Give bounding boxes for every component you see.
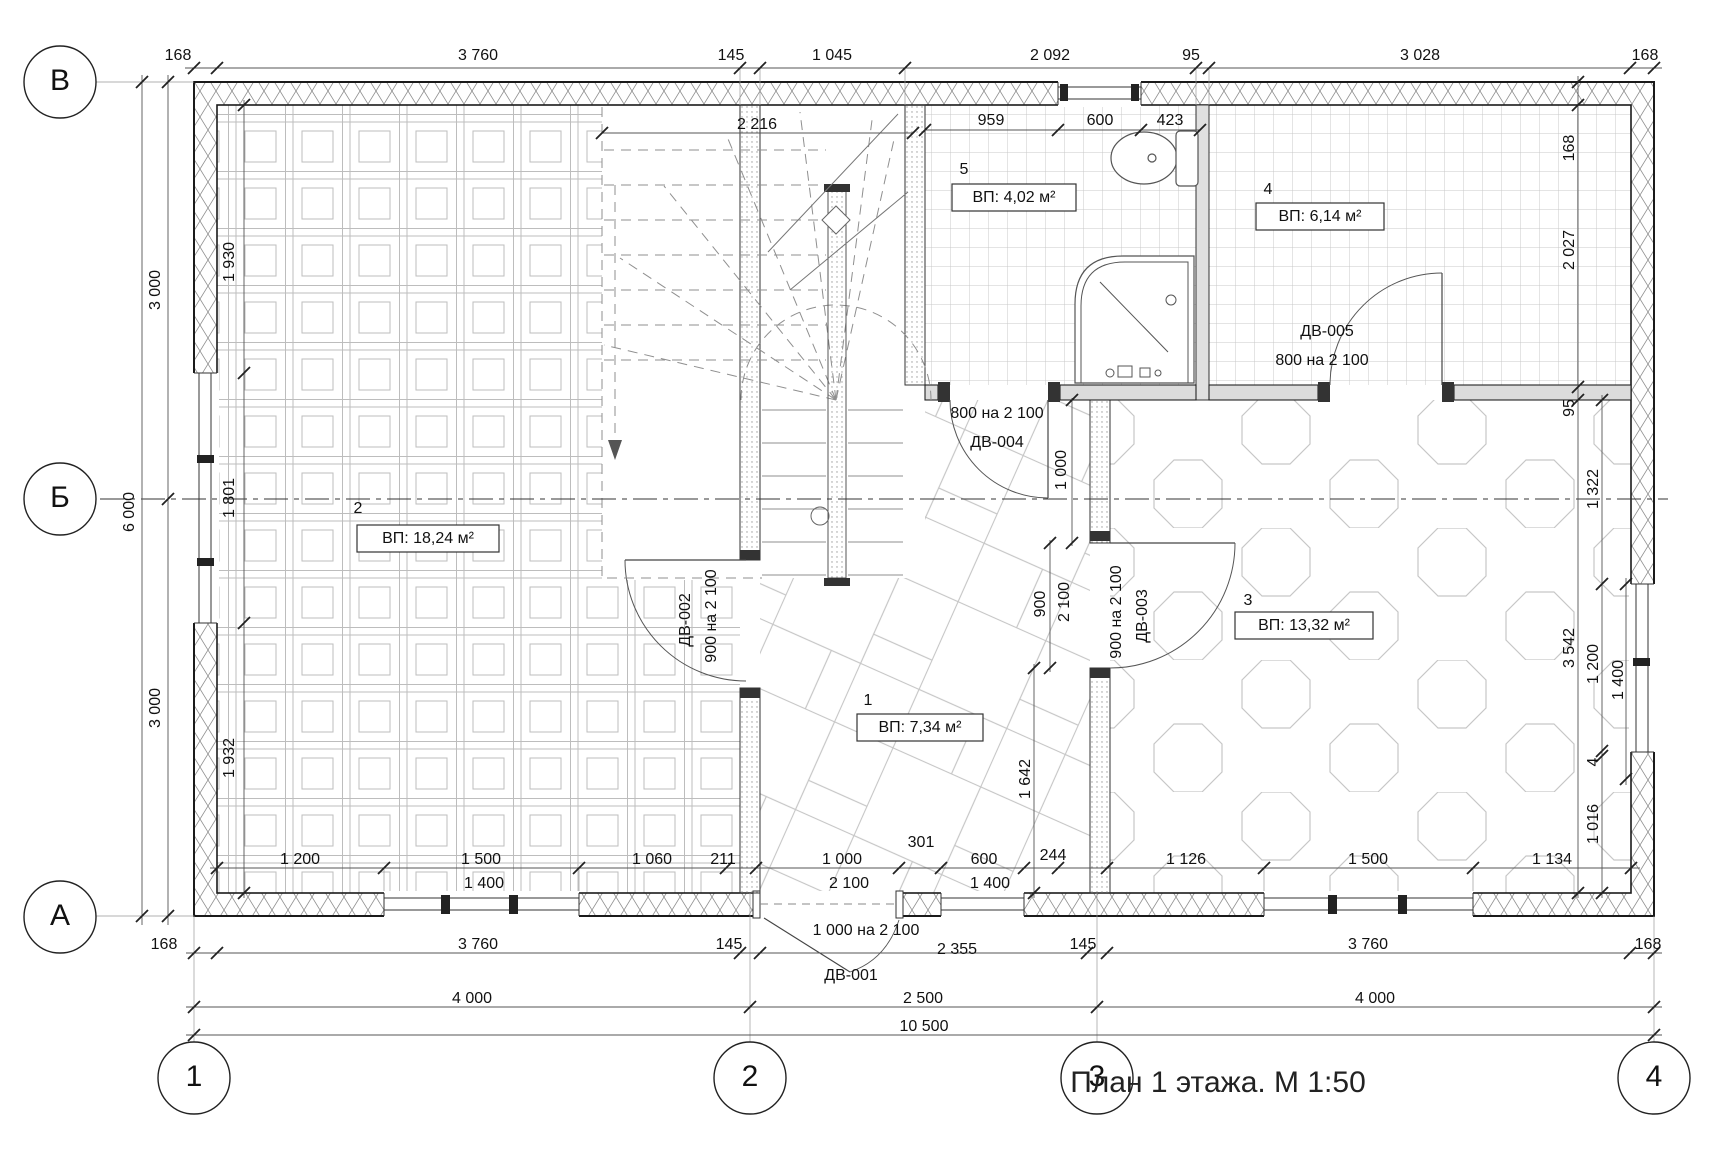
- door-size-dv001: 1 000 на 2 100: [813, 922, 920, 939]
- dim-right: 4: [1585, 757, 1602, 766]
- wall-hall-room3-lower: [1090, 668, 1110, 893]
- toilet: [1111, 131, 1198, 186]
- dim-bottom1: 1 126: [1166, 851, 1206, 868]
- room-number-4: 4: [1264, 181, 1273, 198]
- room-number-2: 2: [354, 500, 363, 517]
- dim-bottom1: 301: [908, 834, 935, 851]
- door-size-dv002: 900 на 2 100: [703, 569, 720, 662]
- room-number-3: 3: [1244, 592, 1253, 609]
- drawing-title: План 1 этажа. М 1:50: [1070, 1066, 1366, 1099]
- dim-top: 145: [718, 47, 745, 64]
- grid-bubble-4: 4: [1646, 1060, 1663, 1093]
- dim-hall: 1 642: [1017, 759, 1034, 799]
- dim-bottom1: 1 134: [1532, 851, 1572, 868]
- wall-hall-room3-upper: [1090, 400, 1110, 543]
- window-bottom-small: [941, 891, 1024, 918]
- dim-right: 3 542: [1561, 628, 1578, 668]
- dim-bottom1: 600: [971, 851, 998, 868]
- dim-bottom2: 3 760: [1348, 936, 1388, 953]
- dim-bottom3: 2 500: [903, 990, 943, 1007]
- dim-bottom1: 1 200: [280, 851, 320, 868]
- dim-left: 6 000: [121, 492, 138, 532]
- grid-bubble-a: А: [50, 899, 70, 932]
- door-label-dv002: ДВ-002: [677, 593, 694, 647]
- dim-right: 1 400: [1610, 660, 1627, 700]
- stair-treads-upper: [604, 150, 826, 360]
- dim-bottom1: 1 400: [464, 875, 504, 892]
- dim-top: 95: [1182, 47, 1200, 64]
- stair-direction-arrow: [608, 440, 622, 460]
- dim-right: 1 200: [1585, 644, 1602, 684]
- stairs: [602, 107, 931, 586]
- dim-bottom1: 1 400: [970, 875, 1010, 892]
- window-bottom-left: [384, 891, 579, 918]
- dim-top: 2 092: [1030, 47, 1070, 64]
- dim-right: 95: [1561, 399, 1578, 417]
- door-label-dv004: ДВ-004: [970, 434, 1024, 451]
- stair-stringer: [828, 190, 846, 578]
- dim-bottom1: 211: [710, 851, 736, 868]
- window-right: [1629, 584, 1656, 752]
- dim-bottom1: 1 000: [822, 851, 862, 868]
- dim-right: 1 322: [1585, 469, 1602, 509]
- dim-bath: 423: [1157, 112, 1184, 129]
- dim-stairs: 2 216: [737, 116, 777, 133]
- grid-bubble-2: 2: [742, 1060, 759, 1093]
- dim-bottom1: 1 060: [632, 851, 672, 868]
- dim-left: 3 000: [147, 270, 164, 310]
- wall-corridor-2: [1060, 385, 1196, 400]
- dim-top: 1 045: [812, 47, 852, 64]
- dim-bottom1: 1 500: [1348, 851, 1388, 868]
- grid-bubble-v: В: [50, 64, 70, 97]
- grid-bubble-1: 1: [186, 1060, 203, 1093]
- dim-top: 3 760: [458, 47, 498, 64]
- room3-floor: [1110, 400, 1631, 893]
- dim-bottom2: 168: [1635, 936, 1662, 953]
- grid-bubble-b: Б: [50, 481, 70, 514]
- stair-post-symbol: [811, 507, 829, 525]
- stairwell-outline: [602, 107, 762, 578]
- floor-plan-drawing: ВБА12341683 7601451 0452 092953 0281683 …: [0, 0, 1716, 1154]
- dim-bottom1: 244: [1040, 847, 1067, 864]
- stair-stringer-cap-bottom: [824, 578, 850, 586]
- door-size-dv005: 800 на 2 100: [1275, 352, 1368, 369]
- dim-top: 168: [1632, 47, 1659, 64]
- window-top: [1058, 80, 1141, 107]
- dim-left-inner: 1 932: [221, 738, 238, 778]
- wall-room2-lower: [740, 688, 760, 893]
- room-area-2: ВП: 18,24 м²: [382, 530, 475, 547]
- dim-bottom2: 168: [151, 936, 178, 953]
- dim-top: 168: [165, 47, 192, 64]
- dim-bottom1: 1 500: [461, 851, 501, 868]
- dim-left-inner: 1 801: [221, 478, 238, 518]
- dim-door3: 900: [1032, 591, 1049, 618]
- dim-right: 1 016: [1585, 804, 1602, 844]
- dim-right: 168: [1561, 135, 1578, 162]
- dim-bath: 959: [978, 112, 1005, 129]
- wall-corridor-1: [925, 385, 938, 400]
- dim-top: 3 028: [1400, 47, 1440, 64]
- dim-left-inner: 1 930: [221, 242, 238, 282]
- dim-bottom1: 2 100: [829, 875, 869, 892]
- room-area-3: ВП: 13,32 м²: [1258, 617, 1351, 634]
- window-bottom-right: [1264, 891, 1473, 918]
- wall-stairs-bath: [905, 105, 925, 385]
- dim-bottom4: 10 500: [900, 1018, 949, 1035]
- floor-plan-sheet: ВБА12341683 7601451 0452 092953 0281683 …: [0, 0, 1716, 1154]
- door-size-dv004: 800 на 2 100: [950, 405, 1043, 422]
- entry-door-opening: [753, 891, 903, 918]
- shower: [1075, 256, 1194, 383]
- room-area-5: ВП: 4,02 м²: [973, 189, 1057, 206]
- dim-bath: 600: [1087, 112, 1114, 129]
- window-left: [192, 373, 219, 623]
- wall-corridor-3: [1209, 385, 1318, 400]
- dim-bottom2: 145: [1070, 936, 1097, 953]
- door-size-dv003: 900 на 2 100: [1108, 565, 1125, 658]
- door-label-dv005: ДВ-005: [1300, 323, 1354, 340]
- door-label-dv003: ДВ-003: [1134, 589, 1151, 643]
- dim-left: 3 000: [147, 688, 164, 728]
- wall-room2-upper: [740, 105, 760, 560]
- dim-corridor: 1 000: [1053, 450, 1070, 490]
- dim-right: 2 027: [1561, 230, 1578, 270]
- dim-bottom2: 3 760: [458, 936, 498, 953]
- door-label-dv001: ДВ-001: [824, 967, 878, 984]
- dim-bottom2: 2 355: [937, 941, 977, 958]
- dim-door3: 2 100: [1056, 582, 1073, 622]
- dim-bottom3: 4 000: [1355, 990, 1395, 1007]
- dim-bottom2: 145: [716, 936, 743, 953]
- room-number-1: 1: [864, 692, 873, 709]
- dim-bottom3: 4 000: [452, 990, 492, 1007]
- room-number-5: 5: [960, 161, 969, 178]
- room-area-1: ВП: 7,34 м²: [879, 719, 963, 736]
- room-area-4: ВП: 6,14 м²: [1279, 208, 1363, 225]
